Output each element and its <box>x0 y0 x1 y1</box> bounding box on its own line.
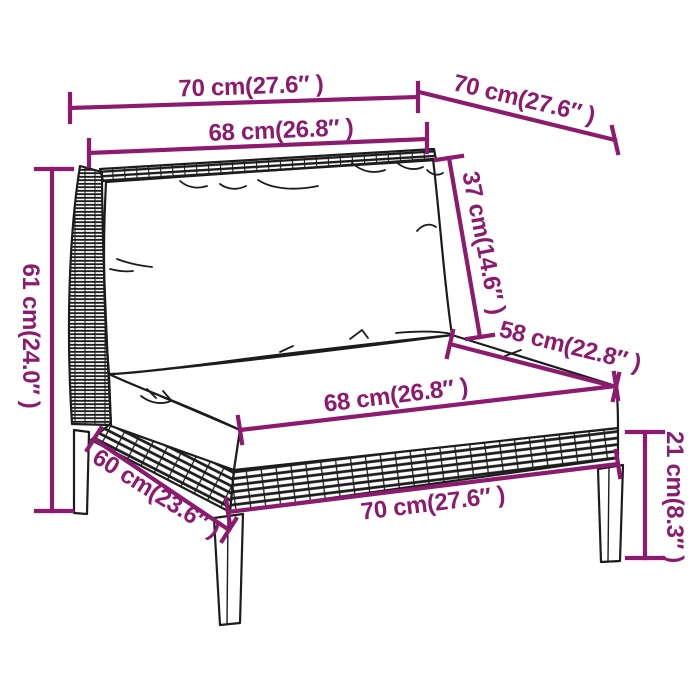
dim-leg-height-label: 21 cm(8.3″ ) <box>662 431 686 563</box>
dim-leg-height-line <box>627 432 663 558</box>
dim-back-width-label: 68 cm(26.8″ ) <box>208 116 354 146</box>
leg-front-right-edge <box>608 467 609 561</box>
diagram-canvas: 70 cm(27.6″ ) 70 cm(27.6″ ) 68 cm(26.8″ … <box>0 0 700 700</box>
dim-top-width-label: 70 cm(27.6″ ) <box>178 72 324 101</box>
back-cushion <box>104 159 452 374</box>
dim-overall-height-label: 61 cm(24.0″ ) <box>18 263 42 408</box>
leg-back-left <box>74 430 89 514</box>
leg-front-right <box>598 465 623 562</box>
